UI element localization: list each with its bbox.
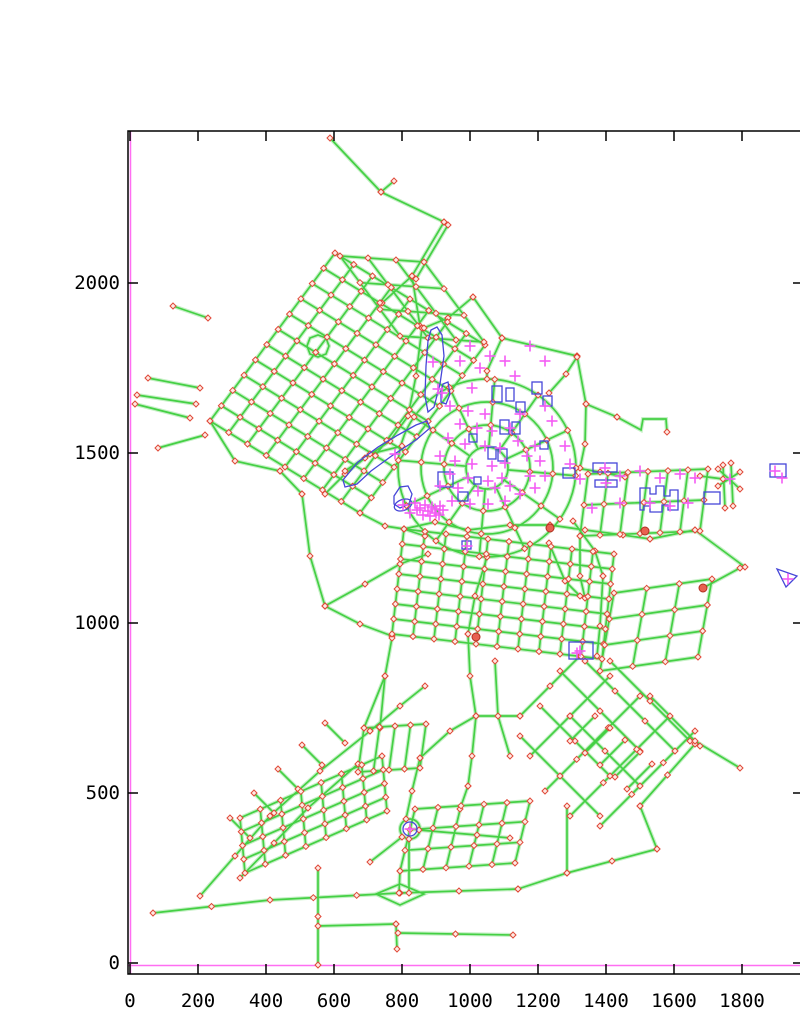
- big-node-marker: [546, 524, 554, 532]
- street: [173, 306, 208, 318]
- node-marker: [315, 923, 321, 929]
- x-tick-label: 1400: [583, 990, 629, 1012]
- street: [135, 404, 190, 418]
- x-tick-label: 600: [317, 990, 351, 1012]
- node-marker: [510, 932, 516, 938]
- node-marker: [456, 888, 462, 894]
- y-tick-label: 2000: [74, 272, 120, 294]
- x-tick-label: 1800: [719, 990, 765, 1012]
- y-tick-label: 500: [86, 782, 120, 804]
- y-tick-label: 0: [109, 952, 120, 974]
- street: [577, 356, 586, 404]
- building-outline: [506, 388, 514, 401]
- street: [405, 725, 411, 769]
- street: [158, 435, 205, 448]
- street: [381, 192, 444, 222]
- x-tick-label: 400: [249, 990, 283, 1012]
- y-tick-label: 1500: [74, 442, 120, 464]
- street: [586, 404, 617, 417]
- street: [330, 138, 381, 192]
- street: [374, 727, 380, 771]
- street: [400, 863, 515, 871]
- street: [650, 696, 700, 746]
- street: [410, 822, 525, 830]
- node-marker: [720, 462, 726, 468]
- street: [605, 631, 703, 645]
- big-node-marker: [472, 633, 480, 641]
- street-layer: [135, 138, 745, 965]
- node-marker: [730, 503, 736, 509]
- x-tick-label: 1000: [447, 990, 493, 1012]
- street: [415, 801, 530, 809]
- node-marker: [315, 962, 321, 968]
- street: [423, 807, 438, 869]
- node-marker: [393, 921, 399, 927]
- street: [479, 489, 485, 557]
- node-marker: [722, 505, 728, 511]
- node-marker: [728, 460, 734, 466]
- ring-street: [444, 425, 530, 511]
- street: [502, 338, 577, 356]
- big-node-marker: [699, 584, 707, 592]
- street: [340, 256, 424, 262]
- street: [446, 806, 461, 868]
- street: [153, 889, 518, 913]
- x-tick-label: 200: [181, 990, 215, 1012]
- street: [278, 769, 298, 789]
- street: [148, 378, 200, 388]
- node-marker: [564, 803, 570, 809]
- street: [614, 579, 712, 593]
- street: [389, 726, 395, 770]
- street: [302, 494, 325, 606]
- street: [325, 723, 345, 743]
- map-canvas: 0200400600800100012001400160018000500100…: [40, 16, 800, 1016]
- node-marker: [315, 865, 321, 871]
- y-tick-label: 1000: [74, 612, 120, 634]
- street: [137, 395, 196, 404]
- node-marker: [484, 376, 490, 382]
- x-tick-label: 0: [124, 990, 135, 1012]
- street: [695, 530, 745, 567]
- node-marker: [394, 946, 400, 952]
- street: [370, 837, 402, 862]
- street: [492, 803, 507, 865]
- street: [420, 716, 476, 758]
- street: [633, 588, 647, 666]
- street: [420, 724, 426, 768]
- street: [508, 470, 576, 476]
- map-plot-figure: 0200400600800100012001400160018000500100…: [40, 16, 760, 984]
- street: [302, 745, 322, 765]
- street: [396, 924, 397, 949]
- node-marker: [453, 931, 459, 937]
- x-tick-label: 1200: [515, 990, 561, 1012]
- node-marker: [315, 914, 321, 920]
- street: [515, 801, 530, 863]
- street: [640, 806, 657, 849]
- x-tick-label: 1600: [651, 990, 697, 1012]
- big-node-marker: [641, 527, 649, 535]
- street: [405, 842, 520, 850]
- sliver-area-boundary: [777, 569, 797, 587]
- x-tick-label: 800: [385, 990, 419, 1012]
- street: [665, 584, 679, 662]
- street: [609, 605, 707, 619]
